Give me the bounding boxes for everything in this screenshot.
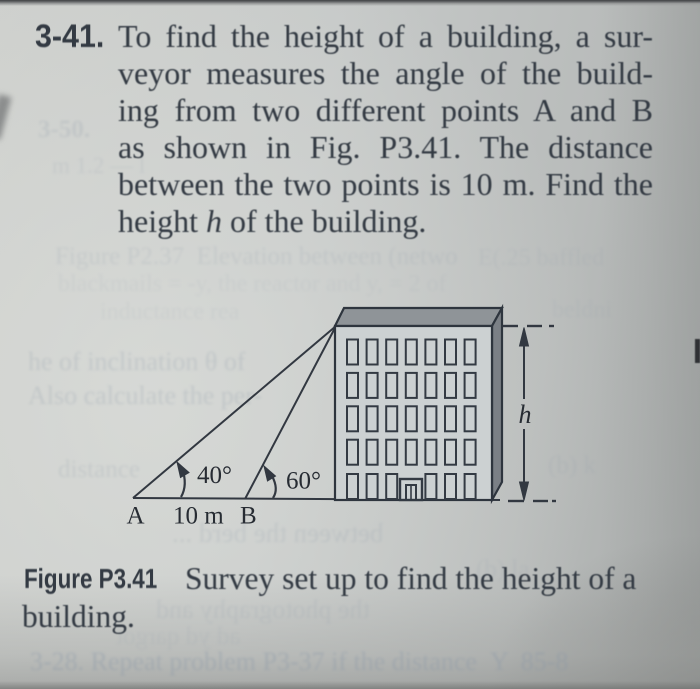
svg-text:60°: 60°	[286, 468, 321, 495]
svg-text:A: A	[127, 503, 145, 530]
svg-text:40°: 40°	[197, 462, 232, 489]
svg-text:10 m: 10 m	[173, 503, 224, 530]
svg-text:h: h	[519, 400, 532, 429]
svg-text:B: B	[240, 503, 257, 530]
